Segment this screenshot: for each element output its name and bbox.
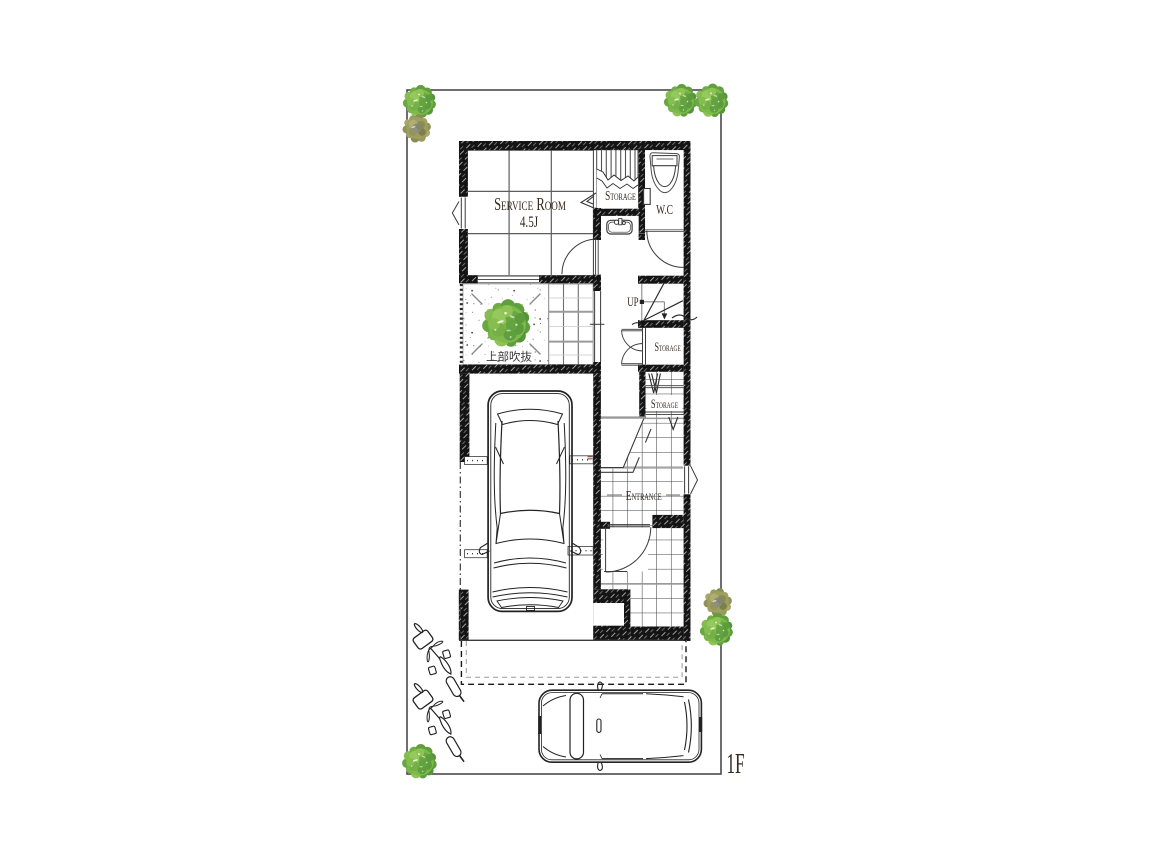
- svg-text:UP: UP: [627, 296, 638, 310]
- svg-text:Entrance: Entrance: [626, 487, 662, 503]
- svg-text:上部吹抜: 上部吹抜: [486, 350, 532, 364]
- svg-text:Storage: Storage: [651, 397, 678, 411]
- svg-text:1F: 1F: [726, 749, 744, 780]
- svg-text:Storage: Storage: [654, 341, 680, 354]
- svg-text:4.5J: 4.5J: [520, 213, 538, 230]
- svg-text:Service Room: Service Room: [494, 195, 566, 215]
- svg-text:W.C: W.C: [656, 201, 673, 217]
- svg-text:Storage: Storage: [605, 189, 636, 203]
